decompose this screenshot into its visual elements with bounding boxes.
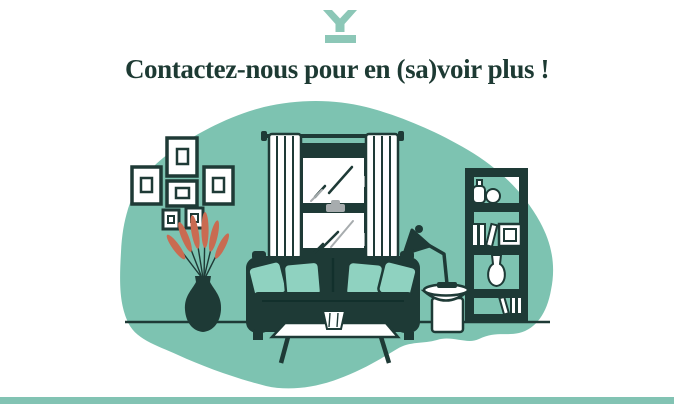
table-vase: [323, 311, 345, 329]
brand-logo-icon: [323, 10, 357, 43]
curtain-left: [269, 134, 301, 258]
shelf-books: [472, 224, 497, 247]
picture-frame-icon: [132, 167, 161, 204]
shelf-books: [499, 297, 522, 315]
sofa-leg: [404, 332, 414, 340]
picture-frame-icon: [204, 167, 233, 204]
picture-frame-icon: [163, 210, 179, 229]
page: Contactez-nous pour en (sa)voir plus !: [0, 0, 674, 404]
footer-accent-bar: [0, 397, 674, 404]
sofa-leg: [253, 332, 263, 340]
curtain-right: [366, 134, 398, 258]
picture-frame-icon: [167, 138, 197, 176]
shelf-ball-vase: [486, 189, 500, 203]
picture-frame-icon: [167, 181, 197, 206]
curtained-window: [261, 131, 404, 258]
window-pane-top: [303, 158, 364, 203]
window-latch: [326, 204, 345, 212]
curtain-rod-finial: [261, 131, 267, 141]
page-heading: Contactez-nous pour en (sa)voir plus !: [0, 54, 674, 85]
shelf-photo-frame: [499, 224, 521, 246]
